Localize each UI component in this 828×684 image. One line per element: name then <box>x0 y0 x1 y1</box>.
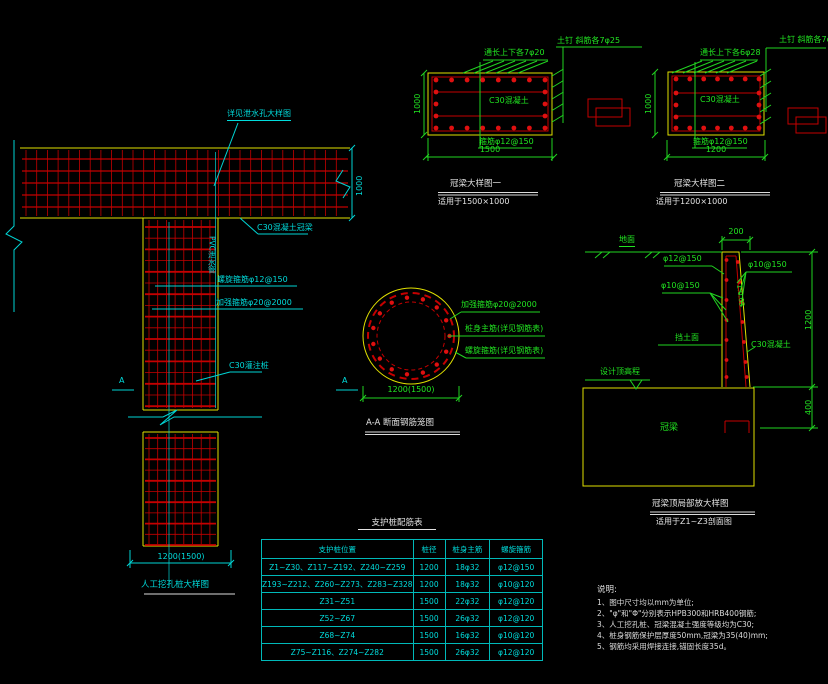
table-cell: φ10@120 <box>490 627 543 644</box>
table-cell: φ12@120 <box>490 610 543 627</box>
table-cell: Z193~Z212、Z260~Z273、Z283~Z328 <box>262 576 414 593</box>
table-cell: 1500 <box>413 593 445 610</box>
table-cell: φ10@120 <box>490 576 543 593</box>
table-cell: 22φ32 <box>445 593 490 610</box>
table-cell: 26φ32 <box>445 644 490 661</box>
cb1-height-dim: 1000 <box>414 94 423 114</box>
wall-bar-10-150-right-label: φ10@150 <box>748 261 787 270</box>
aa-main-bars-label: 桩身主筋(详见钢筋表) <box>465 325 543 334</box>
table-cell: 18φ32 <box>445 576 490 593</box>
wall-bar-12-150-label: φ12@150 <box>663 255 702 264</box>
table-header-cell: 支护桩位置 <box>262 540 414 559</box>
spiral-stirrup-label: 螺旋箍筋φ12@150 <box>217 276 288 285</box>
cb2-title: 冠梁大样图二 <box>674 180 725 189</box>
beam-height-dim: 1000 <box>356 176 365 196</box>
cb2-width-dim: 1200 <box>696 146 736 155</box>
notes-heading: 说明: <box>597 585 825 596</box>
rebar-dots <box>371 77 761 379</box>
cb2-concrete-label: C30混凝土 <box>700 96 740 105</box>
table-cell: Z1~Z30、Z117~Z192、Z240~Z259 <box>262 559 414 576</box>
table-row: Z52~Z67150026φ32φ12@120 <box>262 610 543 627</box>
crown-beam-concrete-label: C30混凝土冠梁 <box>257 224 313 233</box>
table-row: Z68~Z74150016φ32φ10@120 <box>262 627 543 644</box>
aa-width-dim: 1200(1500) <box>371 386 451 395</box>
section-marker-a-right: A <box>342 377 347 386</box>
table-cell: 26φ32 <box>445 610 490 627</box>
concrete-outlines <box>20 72 764 546</box>
table-cell: 1500 <box>413 610 445 627</box>
table-cell: 18φ32 <box>445 559 490 576</box>
table-cell: Z52~Z67 <box>262 610 414 627</box>
ground-line-label: 地面 <box>619 236 635 247</box>
table-cell: 1200 <box>413 559 445 576</box>
table-cell: 1500 <box>413 644 445 661</box>
rebar-table: 支护桩位置桩径桩身主筋螺旋箍筋 Z1~Z30、Z117~Z192、Z240~Z2… <box>261 539 543 661</box>
crown-beam-text: 冠梁 <box>660 424 678 434</box>
cb1-side-bars-label: 土钉 斜筋各7φ25 <box>557 37 620 46</box>
note-item: 1、图中尺寸均以mm为单位; <box>597 597 825 608</box>
cb2-height-dim: 1000 <box>645 94 654 114</box>
design-top-elevation-label: 设计顶高程 <box>600 368 640 377</box>
cb2-top-bars-label: 通长上下各6φ28 <box>700 49 761 58</box>
section-marker-a-left: A <box>119 377 124 386</box>
table-cell: Z68~Z74 <box>262 627 414 644</box>
table-row: Z75~Z116、Z274~Z282150026φ32φ12@120 <box>262 644 543 661</box>
wall-detail-title: 冠梁顶局部放大样图 <box>652 500 729 509</box>
table-cell: φ12@150 <box>490 559 543 576</box>
retained-face-label: 挡土面 <box>675 334 699 343</box>
table-cell: 1500 <box>413 627 445 644</box>
table-cell: Z75~Z116、Z274~Z282 <box>262 644 414 661</box>
cb2-side-bars-label: 土钉 斜筋各7φ25 <box>779 36 828 45</box>
wall-slope-label: 1:0.03 <box>734 284 744 307</box>
wall-top-dim: 200 <box>725 228 747 237</box>
weep-hole-callout: 详见泄水孔大样图 <box>227 110 291 121</box>
cb1-title: 冠梁大样图一 <box>450 180 501 189</box>
table-cell: 16φ32 <box>445 627 490 644</box>
wall-embed-dim: 400 <box>805 400 814 415</box>
cyan-annotations <box>6 123 358 586</box>
cb2-subtitle: 适用于1200×1000 <box>656 198 727 207</box>
table-row: Z193~Z212、Z260~Z273、Z283~Z328120018φ32φ1… <box>262 576 543 593</box>
note-item: 5、钢筋均采用焊接连接,锚固长度35d。 <box>597 641 825 652</box>
pvc-drain-pipe-label: PVC泄水管 <box>207 236 215 273</box>
table-cell: Z31~Z51 <box>262 593 414 610</box>
table-row: Z31~Z51150022φ32φ12@120 <box>262 593 543 610</box>
table-cell: φ12@120 <box>490 644 543 661</box>
wall-bar-10-150-left-label: φ10@150 <box>661 282 700 291</box>
table-cell: φ12@120 <box>490 593 543 610</box>
pile-detail-title: 人工挖孔桩大样图 <box>141 581 209 590</box>
aa-title: A-A 断面钢筋笼图 <box>366 419 434 428</box>
table-row: Z1~Z30、Z117~Z192、Z240~Z259120018φ32φ12@1… <box>262 559 543 576</box>
note-item: 3、人工挖孔桩、冠梁混凝土强度等级均为C30; <box>597 619 825 630</box>
green-annotations <box>360 47 826 431</box>
wall-detail-subtitle: 适用于Z1~Z3剖面图 <box>656 518 732 527</box>
table-header-cell: 桩径 <box>413 540 445 559</box>
cb1-subtitle: 适用于1500×1000 <box>438 198 509 207</box>
table-cell: 1200 <box>413 576 445 593</box>
title-underlines <box>144 193 770 595</box>
note-item: 2、"φ"和"Φ"分别表示HPB300和HRB400钢筋; <box>597 608 825 619</box>
wall-concrete-label: C30混凝土 <box>751 341 791 350</box>
cb1-width-dim: 1500 <box>470 146 510 155</box>
pile-concrete-label: C30灌注桩 <box>229 362 269 371</box>
table-header-row: 支护桩位置桩径桩身主筋螺旋箍筋 <box>262 540 543 559</box>
table-header-cell: 桩身主筋 <box>445 540 490 559</box>
pile-width-dim: 1200(1500) <box>141 553 221 562</box>
table-header-cell: 螺旋箍筋 <box>490 540 543 559</box>
cad-drawing-sheet: 详见泄水孔大样图 1000 PVC泄水管 C30混凝土冠梁 螺旋箍筋φ12@15… <box>0 0 828 684</box>
strength-hoop-label: 加强箍筋φ20@2000 <box>216 299 292 308</box>
aa-spiral-label: 螺旋箍筋(详见钢筋表) <box>465 347 543 356</box>
cb1-top-bars-label: 通长上下各7φ20 <box>484 49 545 58</box>
wall-height-dim: 1200 <box>805 310 814 330</box>
note-item: 4、桩身钢筋保护层厚度50mm,冠梁为35(40)mm; <box>597 630 825 641</box>
aa-strength-hoop-label: 加强箍筋φ20@2000 <box>461 301 537 310</box>
cb1-concrete-label: C30混凝土 <box>489 97 529 106</box>
notes-block: 说明: 1、图中尺寸均以mm为单位;2、"φ"和"Φ"分别表示HPB300和HR… <box>597 585 825 652</box>
rebar-table-title: 支护桩配筋表 <box>358 519 436 530</box>
